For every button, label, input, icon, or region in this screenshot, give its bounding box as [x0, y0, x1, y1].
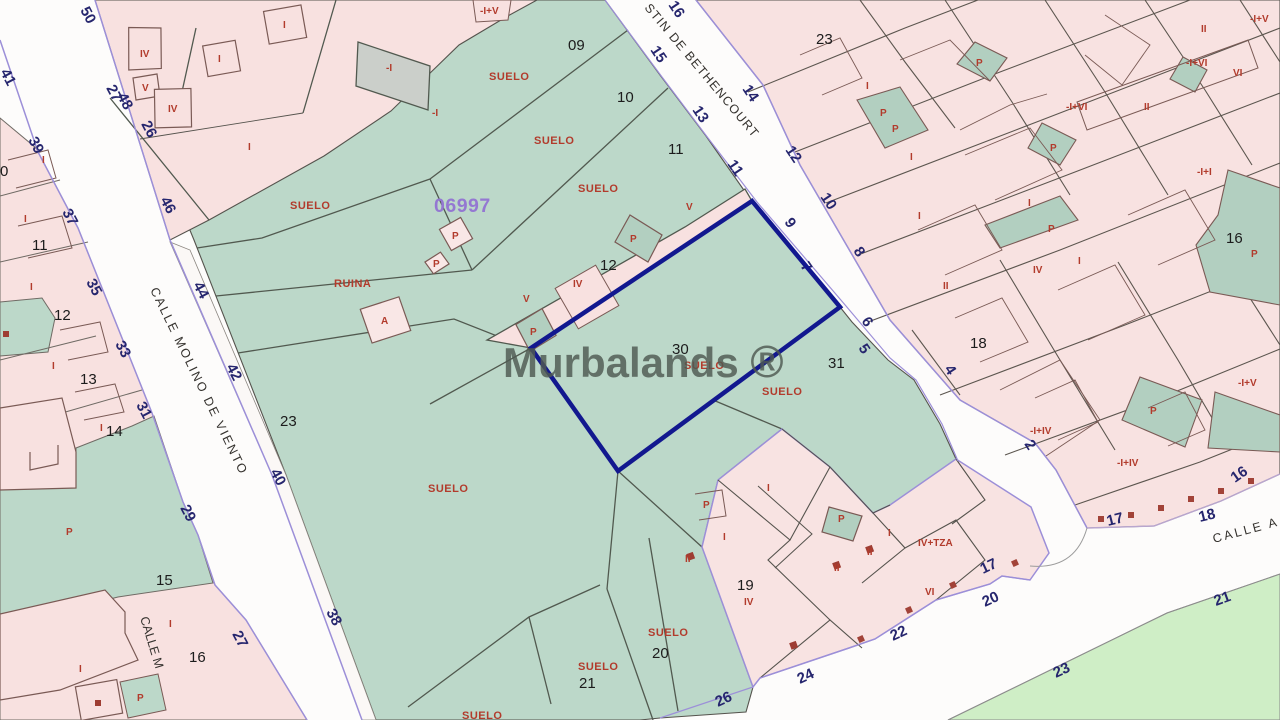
- svg-text:IV: IV: [168, 104, 178, 115]
- svg-text:I: I: [169, 619, 172, 630]
- svg-text:-I: -I: [386, 63, 392, 74]
- svg-text:P: P: [66, 527, 73, 538]
- svg-text:P: P: [452, 231, 459, 242]
- svg-text:P: P: [703, 500, 710, 511]
- svg-text:-I+IV: -I+IV: [1117, 458, 1139, 469]
- svg-text:P: P: [1050, 143, 1057, 154]
- svg-text:I: I: [79, 664, 82, 675]
- svg-text:12: 12: [54, 307, 71, 324]
- svg-text:II: II: [834, 563, 840, 574]
- svg-text:16: 16: [189, 649, 206, 666]
- svg-text:V: V: [523, 294, 530, 305]
- svg-text:13: 13: [80, 371, 97, 388]
- svg-text:23: 23: [280, 413, 297, 430]
- svg-text:P: P: [137, 693, 144, 704]
- svg-text:16: 16: [1226, 230, 1243, 247]
- svg-text:I: I: [866, 81, 869, 92]
- svg-text:10: 10: [617, 89, 634, 106]
- svg-text:IV: IV: [744, 597, 754, 608]
- svg-text:-I+VI: -I+VI: [1186, 58, 1208, 69]
- svg-text:21: 21: [579, 675, 596, 692]
- svg-text:06997: 06997: [434, 195, 491, 217]
- svg-text:-I+I: -I+I: [1197, 167, 1212, 178]
- svg-text:P: P: [433, 259, 440, 270]
- svg-text:18: 18: [970, 335, 987, 352]
- svg-text:Murbalands ®: Murbalands ®: [503, 336, 784, 387]
- svg-text:I: I: [30, 282, 33, 293]
- svg-text:I: I: [723, 532, 726, 543]
- svg-text:I: I: [1028, 198, 1031, 209]
- svg-text:P: P: [976, 58, 983, 69]
- svg-text:SUELO: SUELO: [762, 386, 802, 398]
- svg-text:I: I: [42, 155, 45, 166]
- svg-text:14: 14: [106, 423, 123, 440]
- svg-text:IV+TZA: IV+TZA: [918, 538, 953, 549]
- svg-text:SUELO: SUELO: [534, 135, 574, 147]
- svg-text:SUELO: SUELO: [578, 661, 618, 673]
- svg-text:A: A: [381, 316, 388, 327]
- svg-text:I: I: [910, 152, 913, 163]
- svg-text:I: I: [767, 483, 770, 494]
- svg-text:15: 15: [156, 572, 173, 589]
- svg-text:P: P: [530, 327, 537, 338]
- svg-text:P: P: [838, 514, 845, 525]
- svg-text:-I+V: -I+V: [480, 6, 499, 17]
- svg-text:I: I: [248, 142, 251, 153]
- svg-text:SUELO: SUELO: [290, 200, 330, 212]
- svg-text:II: II: [1201, 24, 1207, 35]
- svg-text:I: I: [218, 54, 221, 65]
- svg-text:I: I: [918, 211, 921, 222]
- svg-text:I: I: [1078, 256, 1081, 267]
- svg-text:11: 11: [32, 237, 48, 254]
- svg-text:-I: -I: [432, 108, 438, 119]
- svg-text:II: II: [685, 554, 691, 565]
- svg-text:IV: IV: [1033, 265, 1043, 276]
- svg-text:I: I: [283, 20, 286, 31]
- svg-text:P: P: [1048, 224, 1055, 235]
- svg-text:SUELO: SUELO: [489, 71, 529, 83]
- svg-text:-I+IV: -I+IV: [1030, 426, 1052, 437]
- svg-text:VI: VI: [1233, 68, 1243, 79]
- svg-text:I: I: [24, 214, 27, 225]
- svg-text:0: 0: [0, 163, 8, 180]
- svg-text:I: I: [100, 423, 103, 434]
- svg-text:09: 09: [568, 37, 585, 54]
- svg-text:-I+V: -I+V: [1238, 378, 1257, 389]
- svg-text:SUELO: SUELO: [428, 483, 468, 495]
- svg-text:I: I: [52, 361, 55, 372]
- svg-text:20: 20: [652, 645, 669, 662]
- svg-text:-I+VI: -I+VI: [1066, 102, 1088, 113]
- svg-text:SUELO: SUELO: [648, 627, 688, 639]
- svg-text:V: V: [686, 202, 693, 213]
- svg-text:VI: VI: [925, 587, 935, 598]
- svg-text:31: 31: [828, 355, 845, 372]
- svg-text:P: P: [892, 124, 899, 135]
- svg-text:23: 23: [816, 31, 833, 48]
- svg-text:P: P: [1251, 249, 1258, 260]
- svg-text:12: 12: [600, 257, 617, 274]
- svg-text:11: 11: [668, 141, 684, 158]
- svg-text:RUINA: RUINA: [334, 278, 371, 290]
- svg-text:II: II: [943, 281, 949, 292]
- svg-text:IV: IV: [140, 49, 150, 60]
- svg-text:SUELO: SUELO: [578, 183, 618, 195]
- svg-text:II: II: [1144, 102, 1150, 113]
- svg-text:V: V: [142, 83, 149, 94]
- svg-text:19: 19: [737, 577, 754, 594]
- svg-text:P: P: [1150, 406, 1157, 417]
- svg-text:P: P: [880, 108, 887, 119]
- svg-text:-I+V: -I+V: [1250, 14, 1269, 25]
- svg-text:IV: IV: [573, 279, 583, 290]
- svg-text:I: I: [888, 528, 891, 539]
- svg-text:SUELO: SUELO: [462, 710, 502, 720]
- svg-text:II: II: [867, 547, 873, 558]
- svg-text:P: P: [630, 234, 637, 245]
